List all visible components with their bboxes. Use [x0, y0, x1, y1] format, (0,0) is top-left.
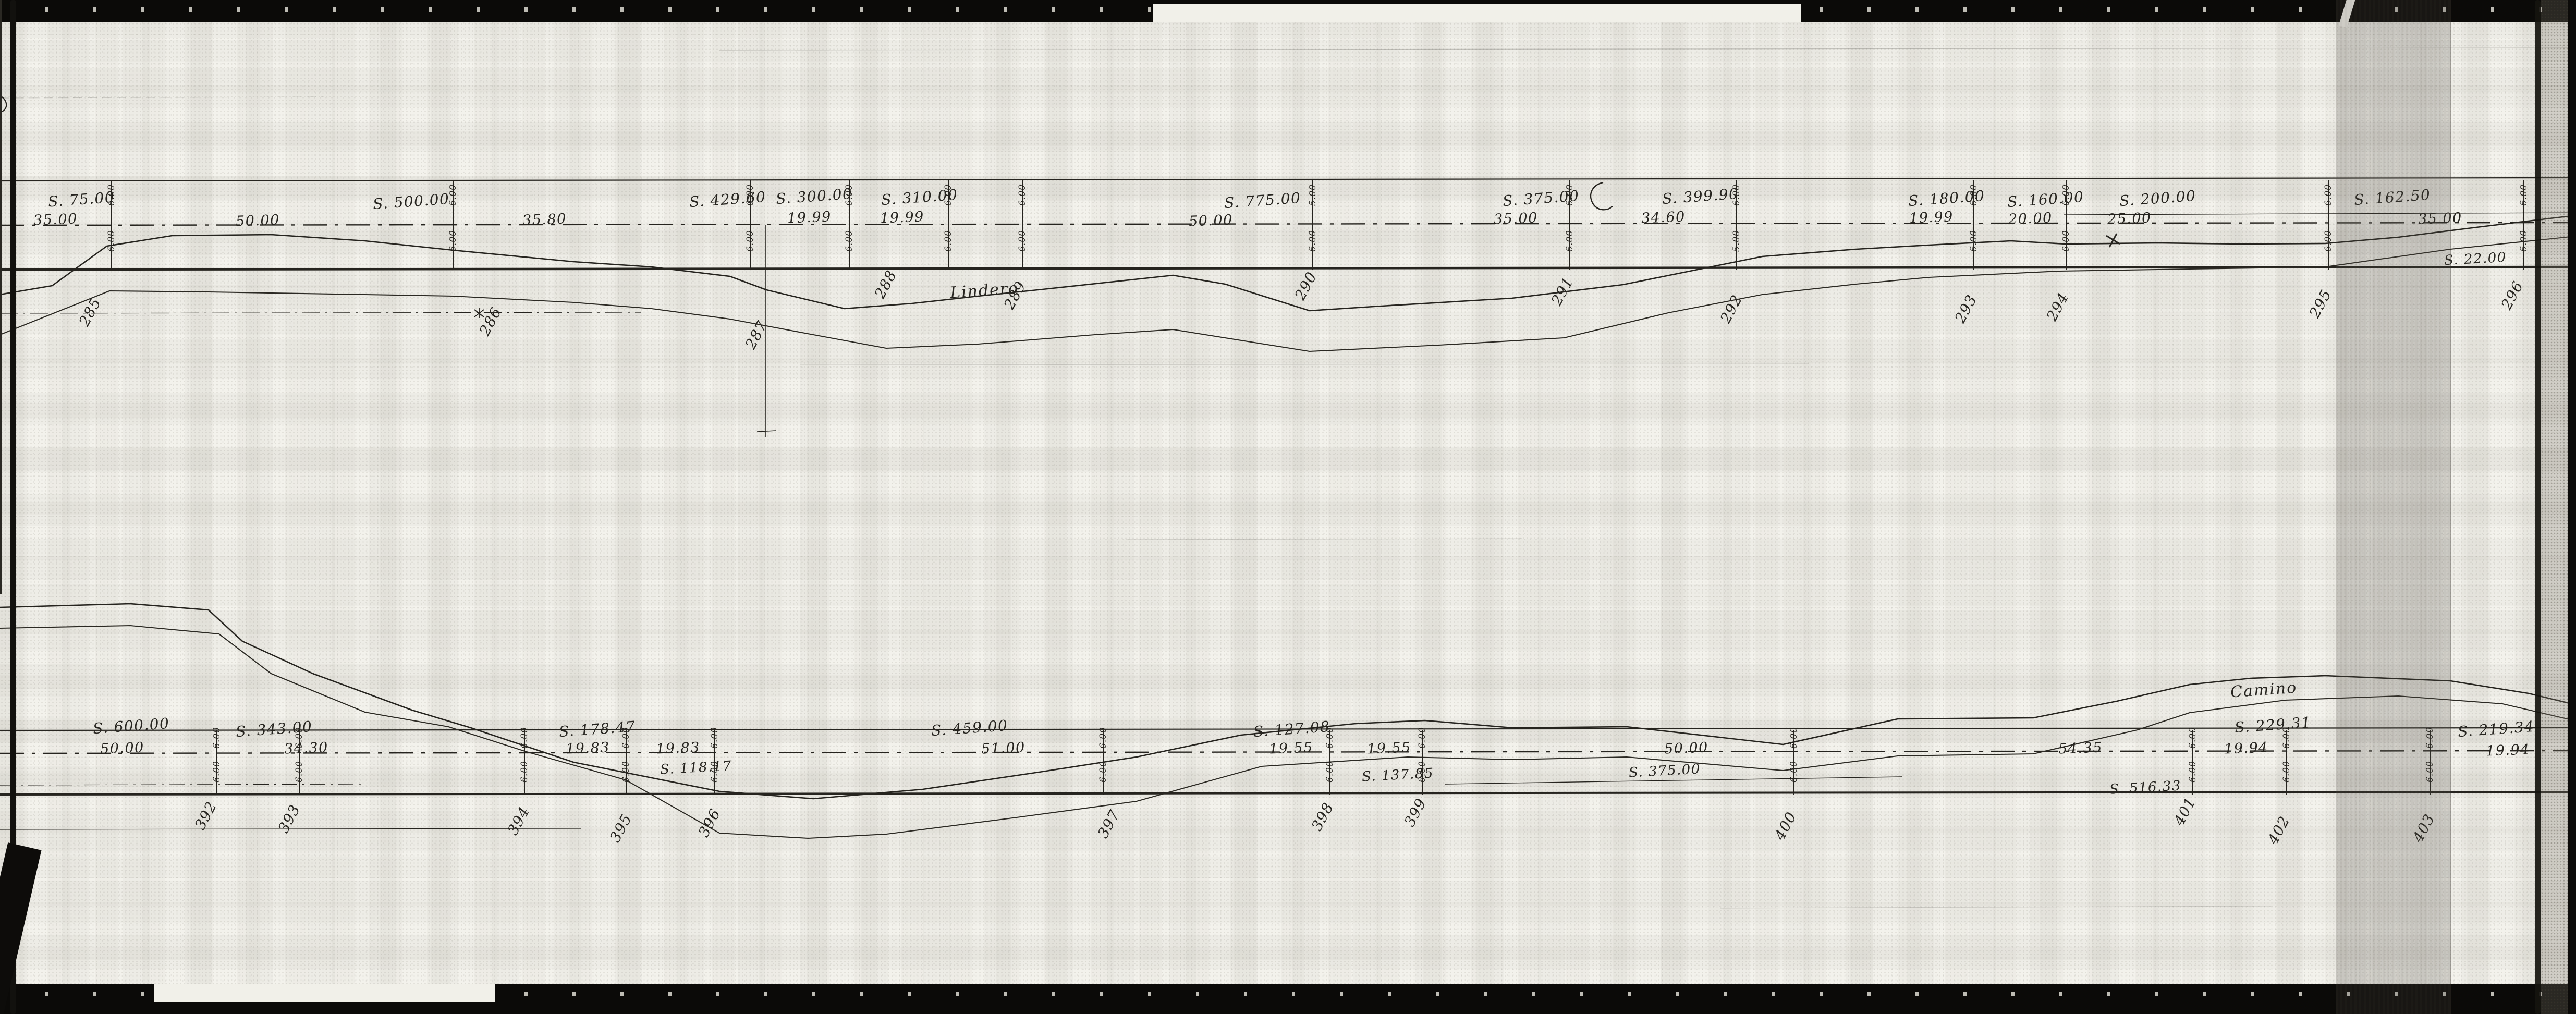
bottom-thin-rule	[0, 828, 581, 829]
ground-line-bottom-lower	[0, 626, 2576, 838]
profile-linework	[0, 0, 2576, 1014]
film-gap	[1153, 4, 1801, 22]
stray-pen-mark	[2106, 234, 2120, 247]
right-edge-bar	[2568, 0, 2576, 1014]
bottom-datum-line	[0, 751, 2576, 753]
faint-line	[1126, 539, 1522, 540]
faint-line	[1720, 906, 2273, 908]
ground-line-bottom-upper	[0, 604, 2576, 799]
faint-line	[719, 48, 2576, 50]
bottom-dashdot-rule	[0, 784, 365, 785]
ground-line-top-upper	[0, 215, 2576, 311]
fold-seam-band	[2336, 0, 2451, 1014]
film-edge-top	[0, 0, 2576, 22]
left-edge-sliver	[0, 0, 2, 594]
thin-rule-left	[0, 312, 641, 313]
bottom-band-lower-border	[0, 792, 2576, 795]
seam-heavy-line	[2535, 0, 2541, 1014]
ground-line-top-lower	[0, 236, 2576, 351]
faint-line	[0, 97, 323, 98]
faint-line	[800, 364, 1809, 365]
top-band-upper-border	[0, 178, 2576, 181]
film-gap	[154, 984, 495, 1002]
right-grain-band	[2541, 0, 2568, 1014]
grade-bracket-rule	[1445, 777, 1902, 784]
thin-rule-right	[2064, 213, 2576, 215]
asterisk-mark	[474, 308, 484, 318]
extended-station-cross	[757, 431, 776, 432]
top-datum-line	[0, 223, 2576, 225]
stray-pen-mark	[1591, 182, 1613, 210]
film-edge-bottom	[0, 984, 2576, 1014]
scanned-profile-sheet: 6.00 6.00 6.00 6.00 6.00 6.00 6.00 6.00 …	[0, 0, 2576, 1014]
